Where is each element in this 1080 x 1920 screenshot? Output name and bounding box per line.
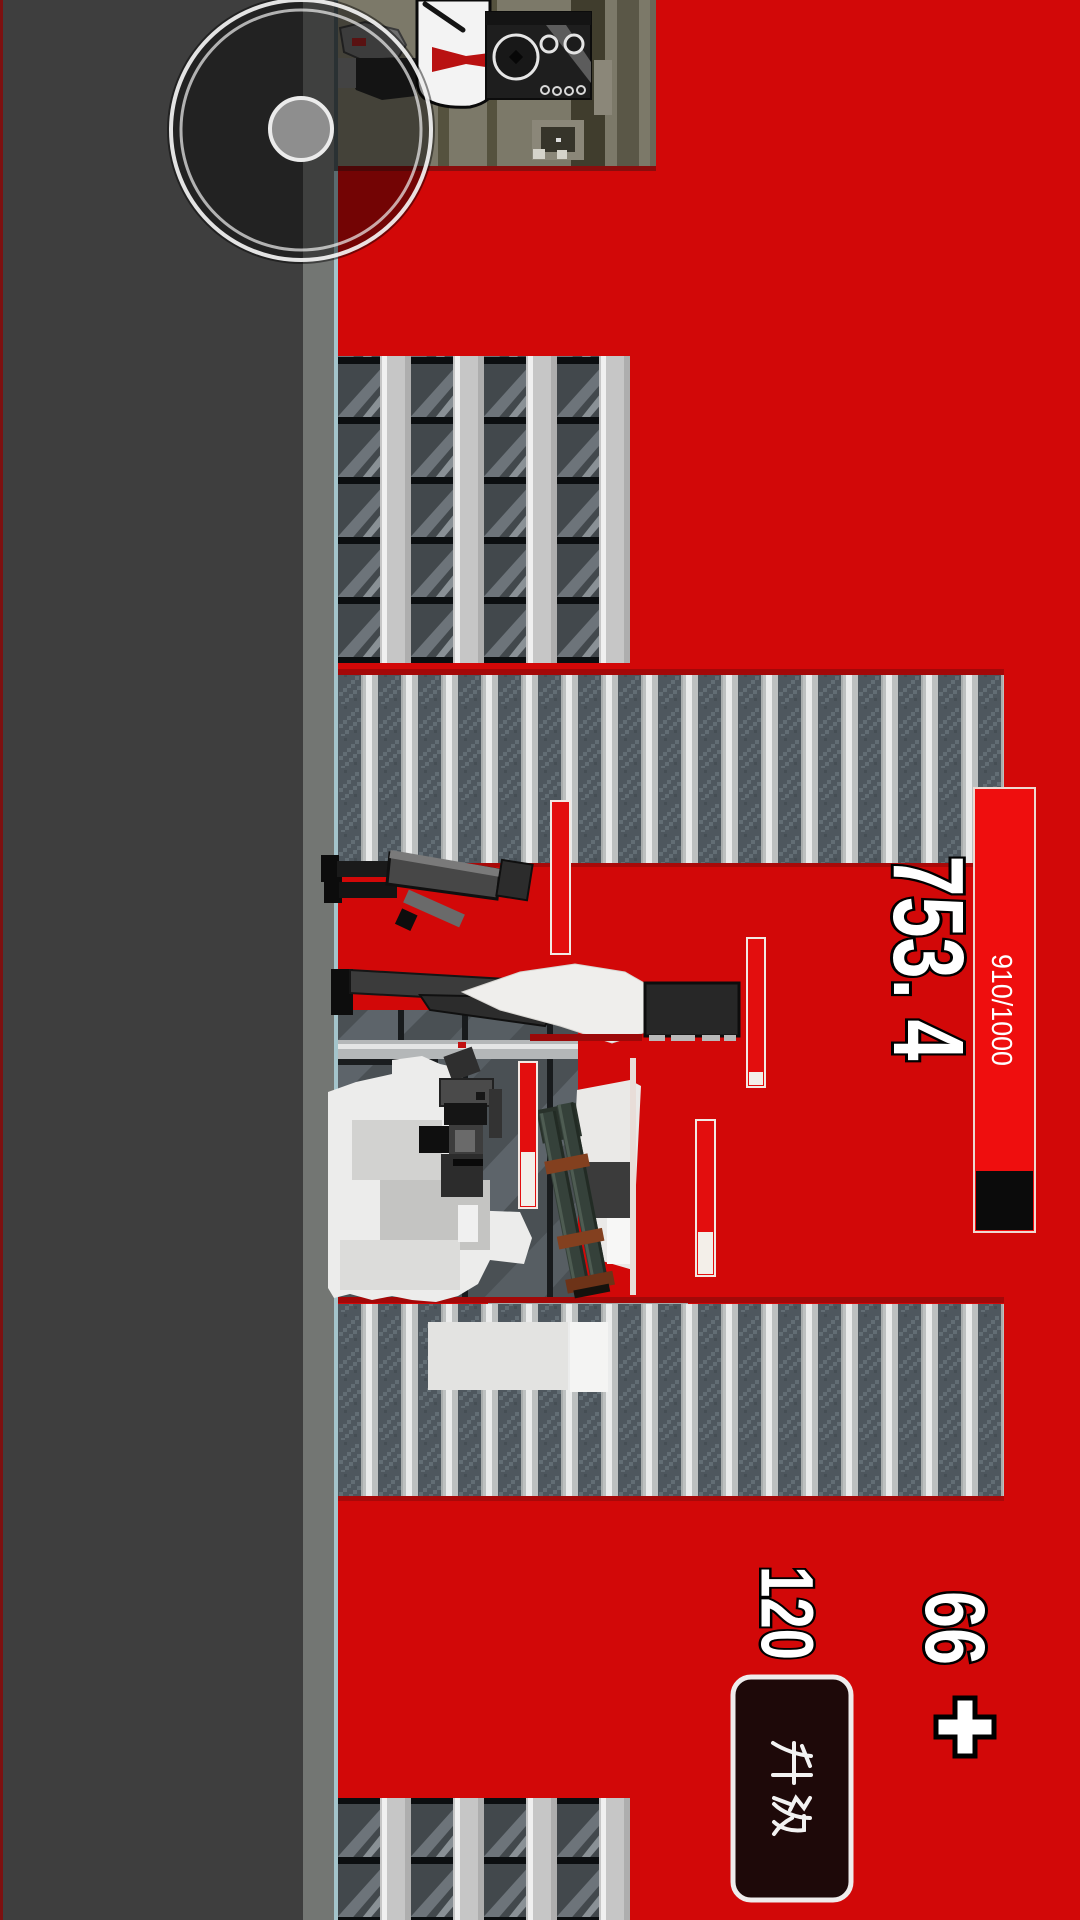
svg-text:120: 120	[746, 1566, 829, 1660]
svg-text:910/1000: 910/1000	[985, 954, 1017, 1066]
svg-text:66: 66	[908, 1591, 1002, 1665]
svg-text:753. 4: 753. 4	[872, 856, 984, 1061]
